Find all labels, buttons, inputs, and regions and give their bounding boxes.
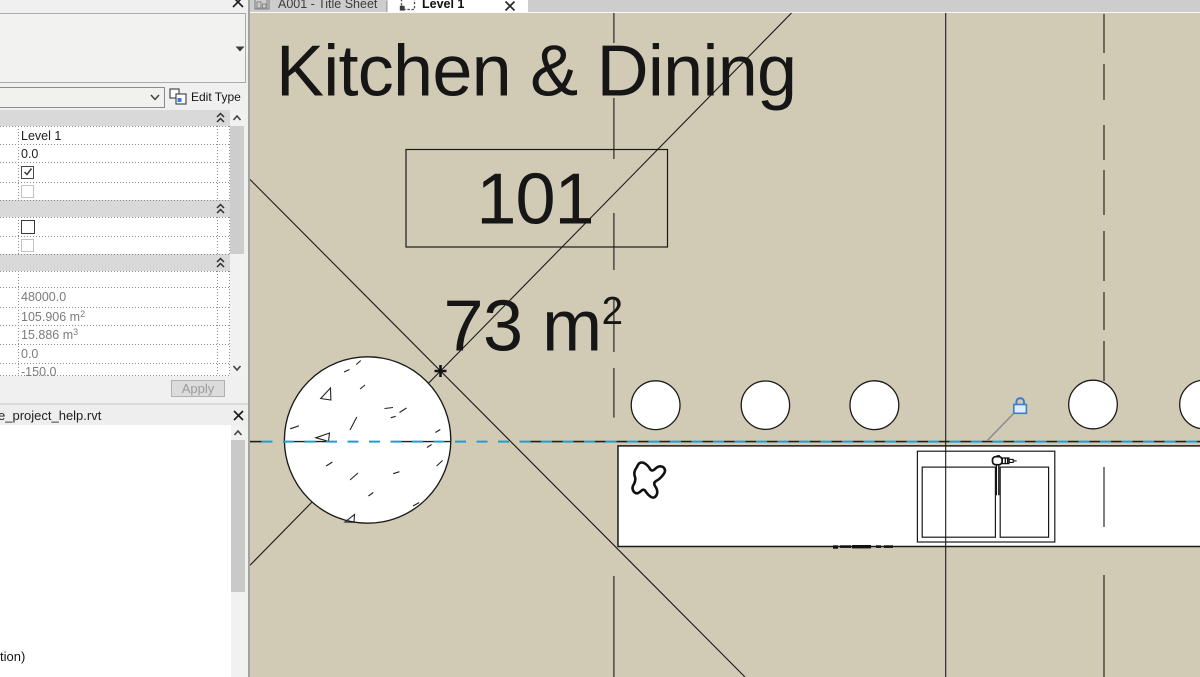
svg-text:73 m2: 73 m2	[444, 287, 624, 367]
svg-text:Kitchen & Dining: Kitchen & Dining	[276, 32, 796, 112]
svg-text:101: 101	[476, 160, 593, 240]
